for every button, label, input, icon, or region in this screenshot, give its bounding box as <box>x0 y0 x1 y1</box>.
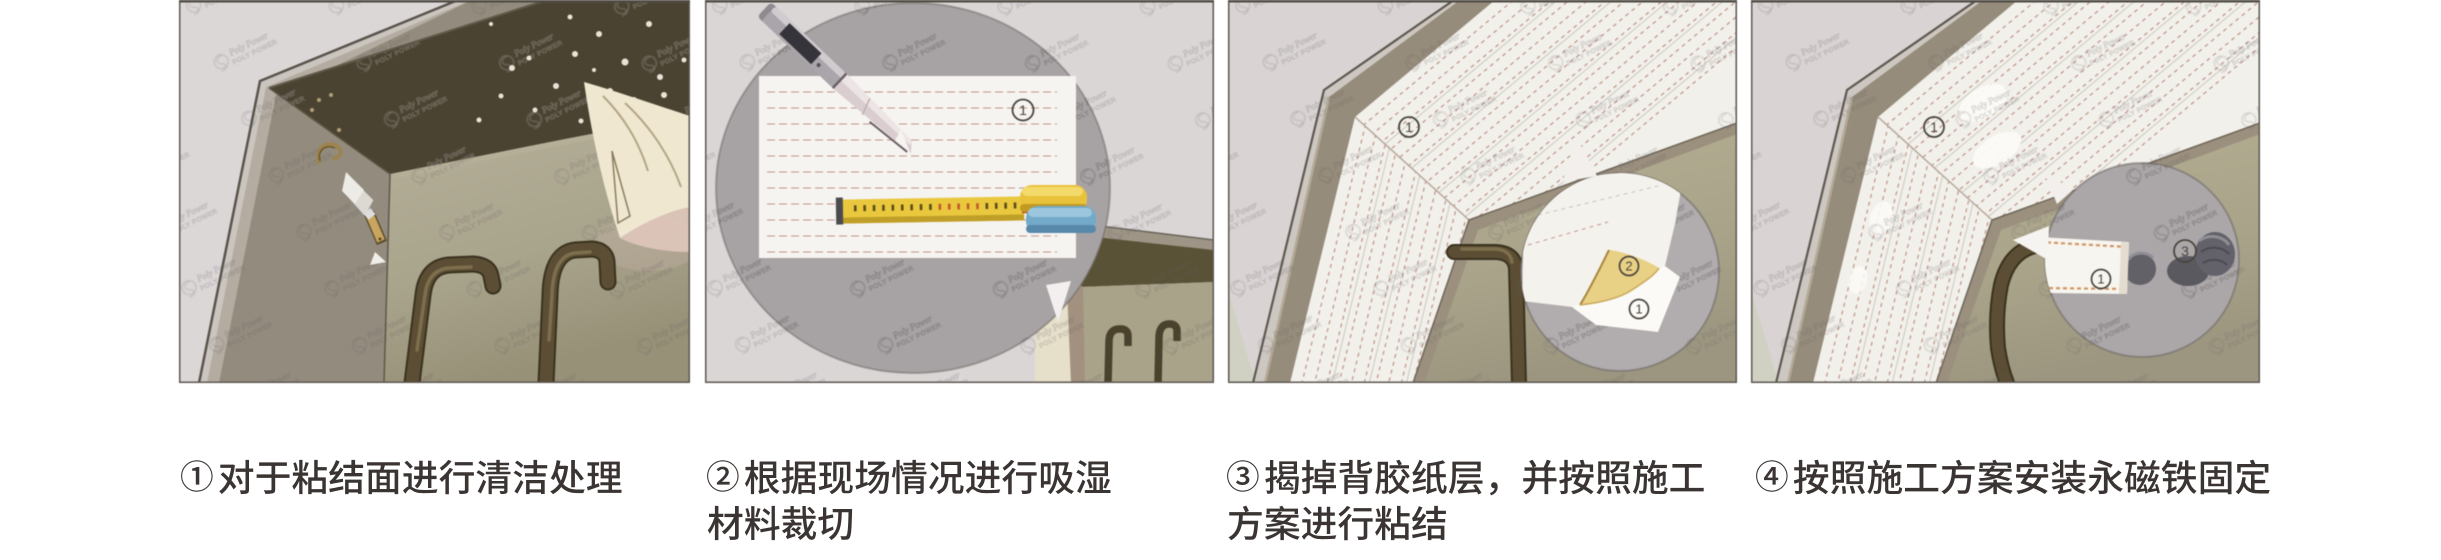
svg-text:3: 3 <box>2181 243 2189 259</box>
svg-text:1: 1 <box>2097 272 2104 287</box>
svg-text:1: 1 <box>1019 102 1027 118</box>
svg-text:1: 1 <box>1635 302 1642 317</box>
svg-text:1: 1 <box>1930 119 1938 135</box>
svg-text:1: 1 <box>1405 119 1413 135</box>
svg-text:2: 2 <box>1625 259 1632 274</box>
